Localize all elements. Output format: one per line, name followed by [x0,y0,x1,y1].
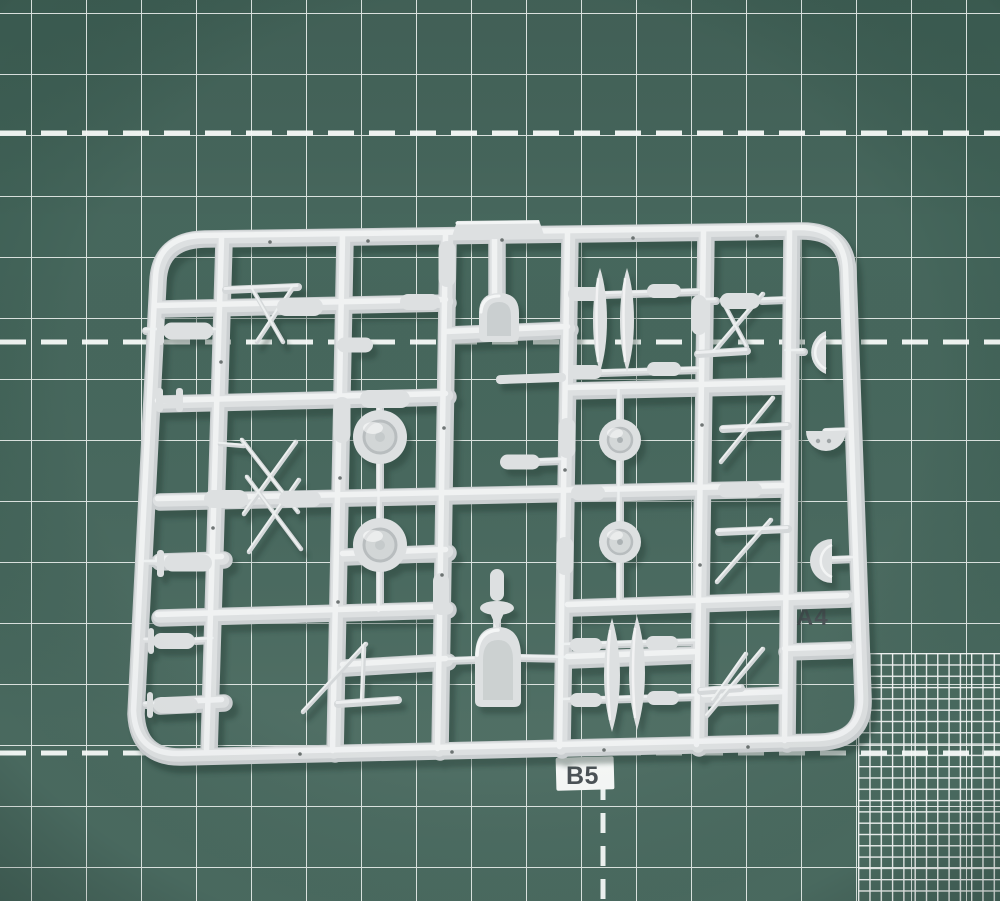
photo-stage: A4 B5 [0,0,1000,901]
photo-svg: A4 B5 [0,0,1000,901]
photo-vignette [0,0,1000,901]
